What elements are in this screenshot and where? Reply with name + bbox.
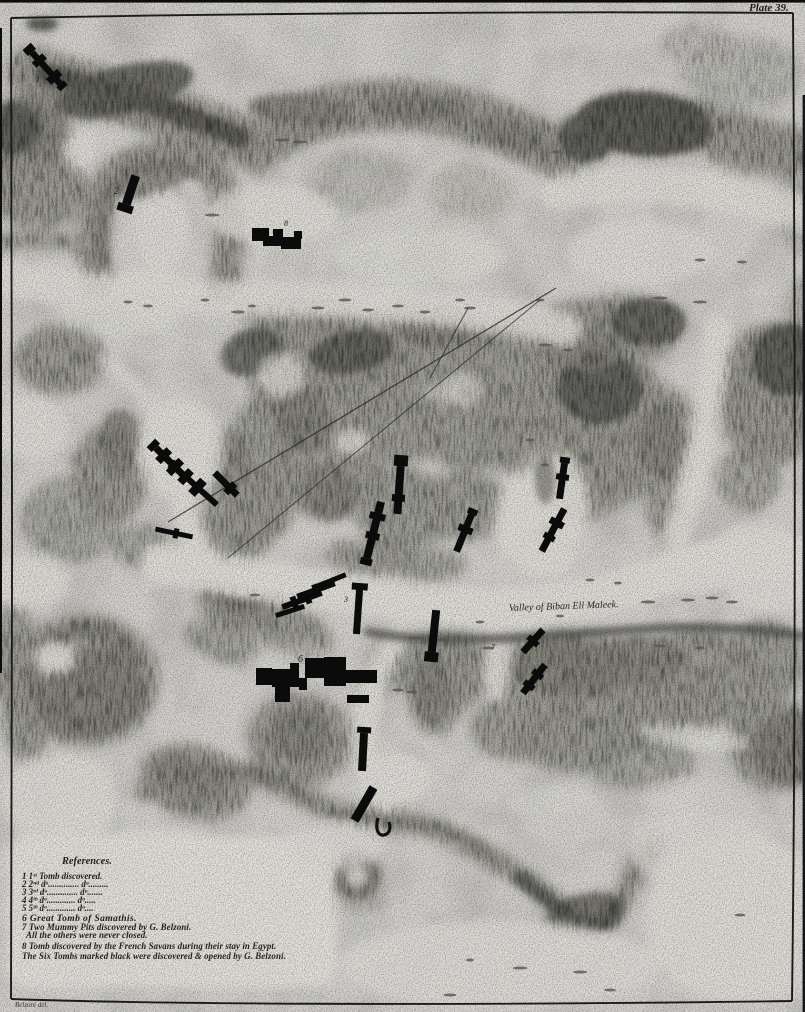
svg-text:1: 1 (36, 75, 40, 84)
svg-text:Plate 39.: Plate 39. (749, 2, 789, 14)
svg-text:Belzoni del.: Belzoni del. (15, 1001, 48, 1009)
svg-text:8 Tomb discovered by the Frenc: 8 Tomb discovered by the French Savans d… (22, 941, 276, 951)
svg-text:References.: References. (61, 856, 112, 867)
svg-text:6: 6 (298, 654, 303, 665)
svg-text:All the others were never clos: All the others were never closed. (25, 930, 148, 940)
svg-text:5 5ᵗʰ dᵒ............. dᵒ....: 5 5ᵗʰ dᵒ............. dᵒ.... (22, 903, 94, 913)
svg-text:The Six Tombs marked black wer: The Six Tombs marked black were discover… (22, 951, 286, 961)
svg-text:8: 8 (284, 219, 288, 228)
svg-text:3: 3 (343, 595, 348, 604)
svg-text:2: 2 (114, 186, 119, 196)
